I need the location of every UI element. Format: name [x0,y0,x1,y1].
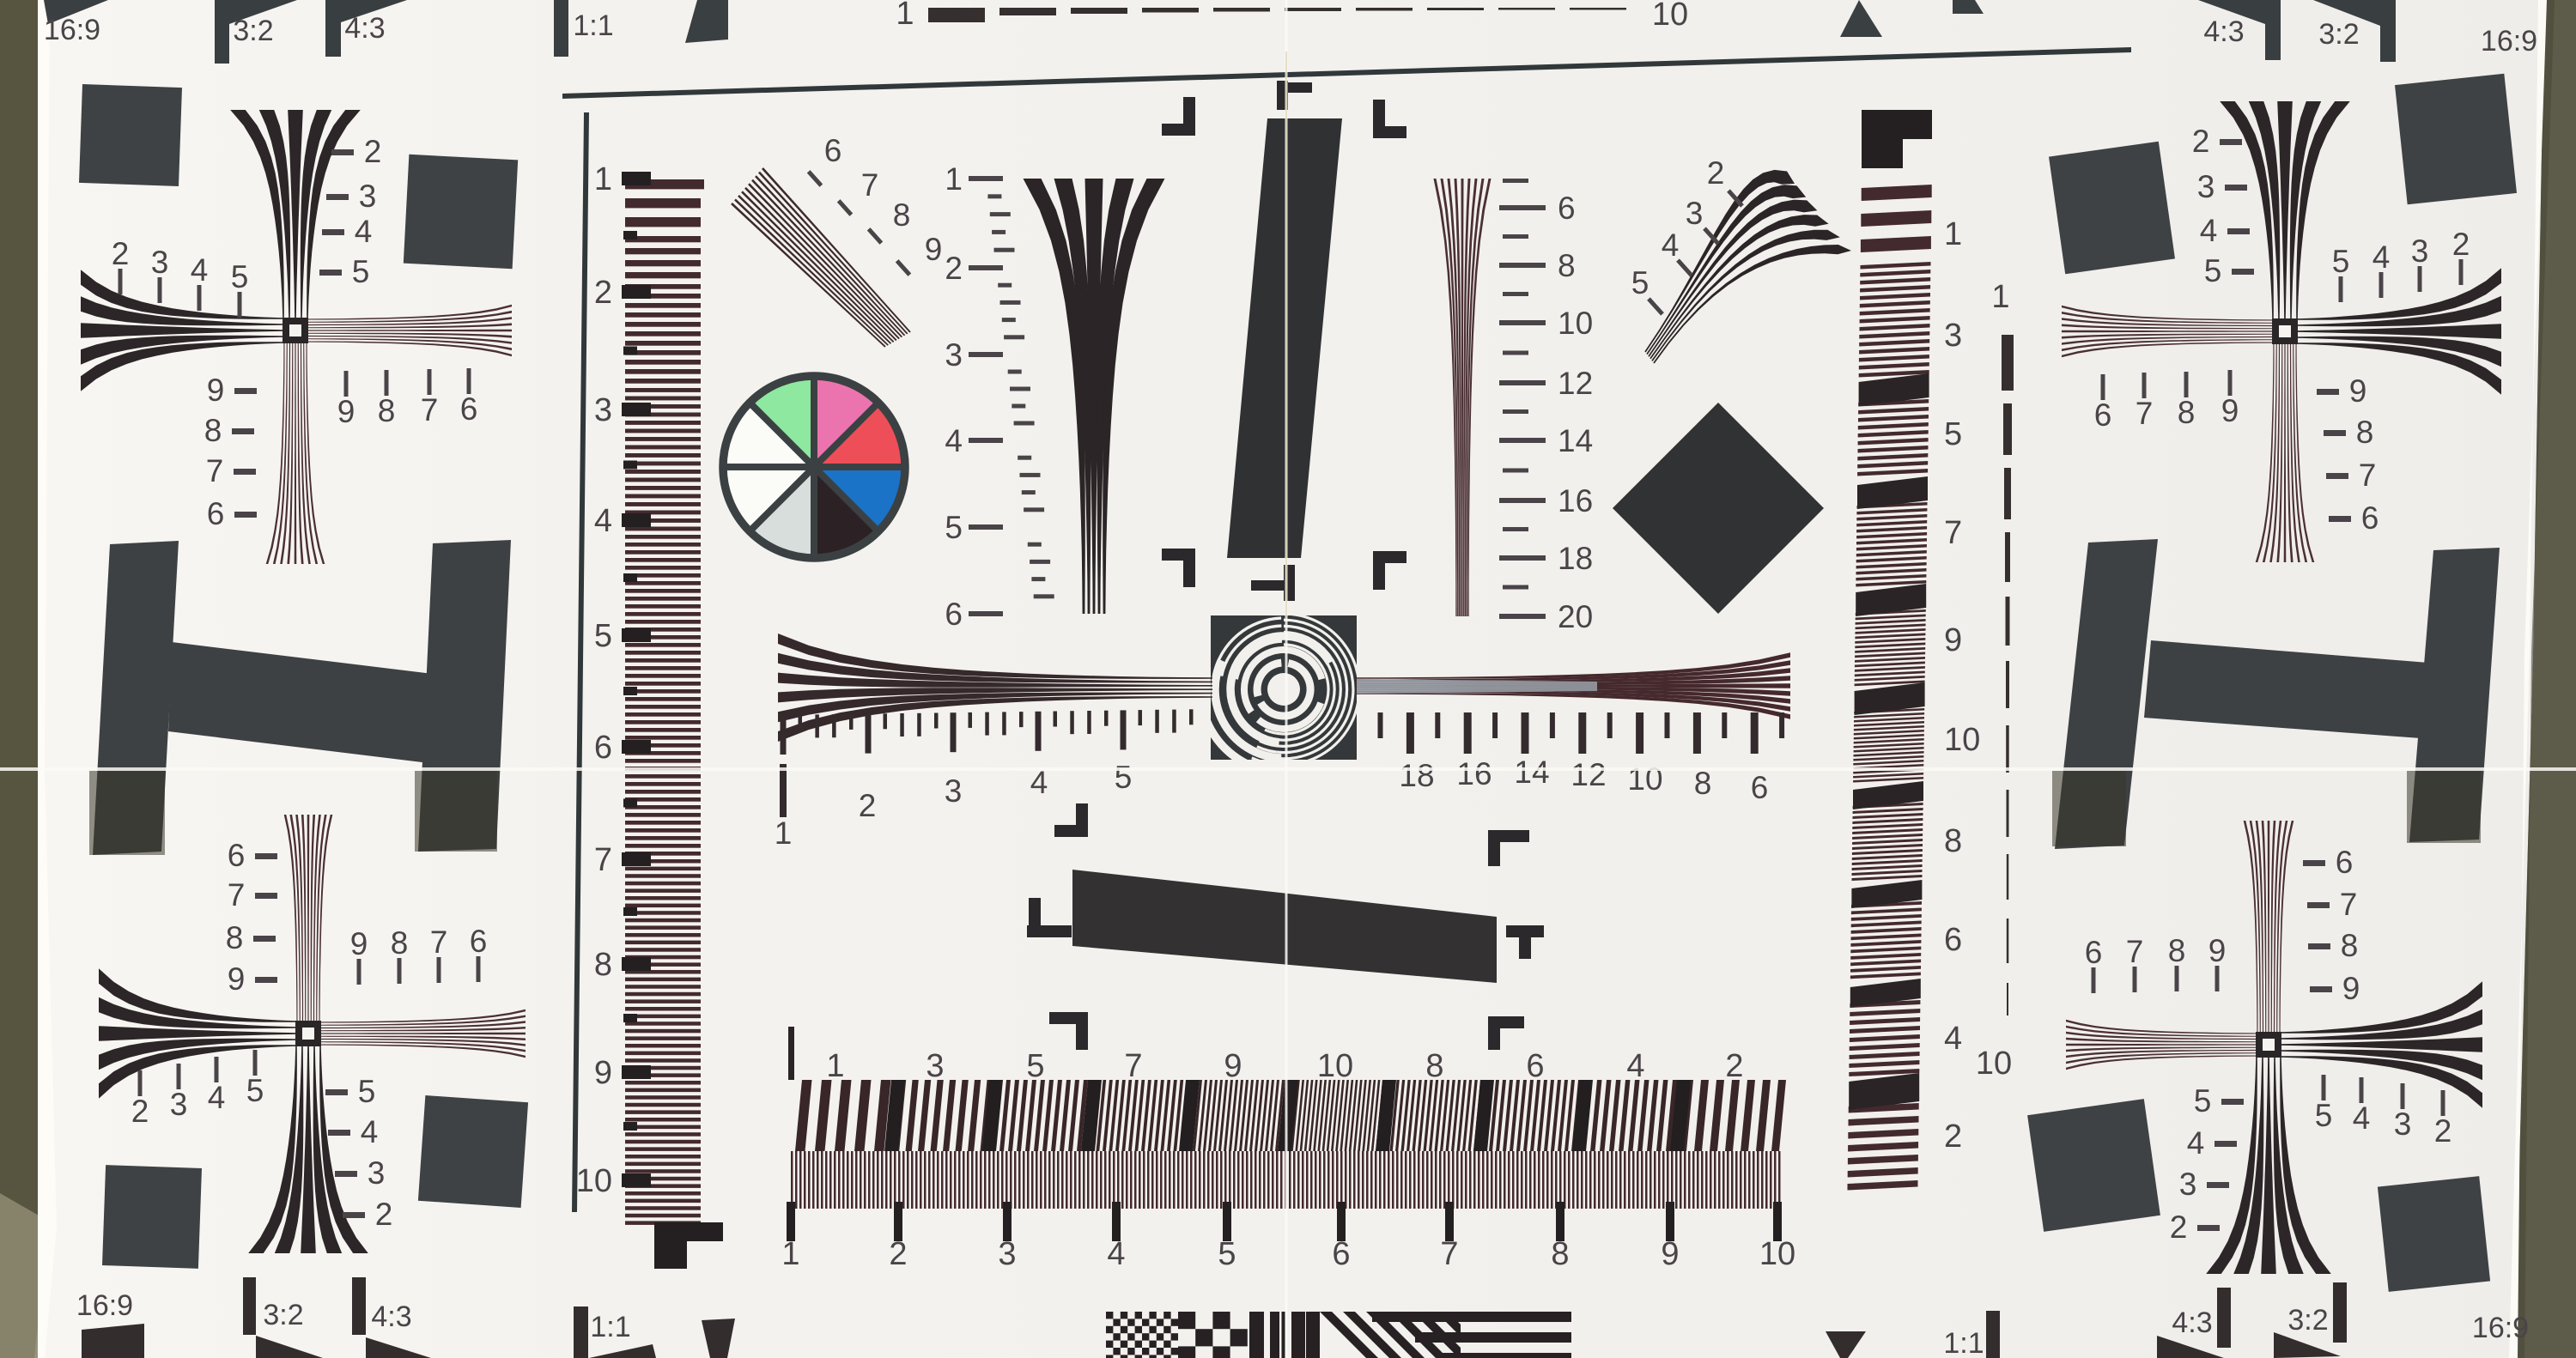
svg-text:6: 6 [470,924,488,959]
svg-text:2: 2 [1707,155,1725,191]
svg-text:4:3: 4:3 [344,12,385,45]
svg-text:7: 7 [1440,1236,1458,1272]
svg-text:2: 2 [594,275,612,311]
svg-text:5: 5 [1944,416,1962,452]
svg-text:4: 4 [2187,1125,2205,1161]
svg-text:1: 1 [1944,216,1962,252]
svg-text:6: 6 [2085,935,2103,970]
svg-text:1: 1 [945,161,963,197]
svg-text:16:9: 16:9 [2472,1312,2529,1344]
svg-text:1:1: 1:1 [1943,1327,1984,1358]
svg-text:7: 7 [2340,887,2358,922]
svg-text:8: 8 [893,197,911,233]
svg-text:7: 7 [861,167,879,203]
svg-text:6: 6 [1751,770,1769,805]
svg-text:16: 16 [1558,483,1593,518]
svg-text:3: 3 [2394,1106,2412,1142]
svg-text:6: 6 [2361,500,2379,536]
svg-text:4:3: 4:3 [371,1300,411,1333]
svg-text:8: 8 [2168,933,2186,968]
svg-text:2: 2 [2170,1209,2188,1245]
svg-text:7: 7 [1944,515,1962,551]
svg-text:1: 1 [775,815,793,851]
svg-text:16:9: 16:9 [44,14,100,46]
svg-text:16: 16 [1456,756,1492,791]
svg-text:5: 5 [2194,1083,2212,1119]
svg-text:9: 9 [337,394,355,429]
svg-text:8: 8 [1944,823,1962,859]
svg-text:8: 8 [2356,415,2374,450]
svg-text:6: 6 [594,730,612,766]
svg-text:1: 1 [826,1048,844,1084]
svg-text:6: 6 [228,838,246,873]
svg-text:1: 1 [594,161,612,197]
svg-text:1: 1 [896,0,914,32]
svg-text:4: 4 [1626,1048,1644,1084]
svg-text:16:9: 16:9 [2481,25,2537,58]
svg-text:20: 20 [1558,599,1593,634]
svg-text:9: 9 [2221,393,2239,428]
svg-text:5: 5 [1631,265,1649,300]
svg-text:12: 12 [1571,757,1606,792]
svg-text:10: 10 [1652,0,1688,33]
svg-text:5: 5 [1218,1236,1236,1272]
svg-text:3: 3 [1686,196,1704,231]
svg-text:6: 6 [1526,1048,1544,1084]
svg-text:4: 4 [1107,1236,1125,1272]
svg-text:5: 5 [352,254,370,289]
svg-text:2: 2 [1725,1048,1743,1084]
svg-text:8: 8 [226,920,244,955]
svg-text:6: 6 [1558,191,1576,226]
svg-text:7: 7 [2136,396,2154,431]
svg-text:3: 3 [998,1236,1016,1272]
svg-text:18: 18 [1558,541,1593,576]
svg-text:1:1: 1:1 [573,9,613,42]
svg-text:6: 6 [1332,1236,1350,1272]
svg-text:3:2: 3:2 [2287,1304,2328,1337]
svg-text:6: 6 [824,133,842,168]
svg-text:5: 5 [246,1073,264,1108]
svg-text:3: 3 [2197,169,2215,204]
svg-text:6: 6 [2336,845,2354,880]
svg-text:10: 10 [1944,722,1980,758]
svg-text:4: 4 [2353,1100,2371,1136]
svg-text:7: 7 [430,925,448,960]
svg-text:3: 3 [151,245,169,280]
svg-text:9: 9 [2342,971,2360,1006]
svg-text:2: 2 [375,1197,393,1232]
svg-text:9: 9 [1224,1048,1242,1084]
svg-text:10: 10 [1627,761,1662,797]
svg-text:8: 8 [594,947,612,983]
svg-text:10: 10 [1976,1046,2012,1082]
svg-text:2: 2 [131,1094,149,1129]
svg-text:4:3: 4:3 [2203,15,2244,48]
svg-text:8: 8 [391,925,409,961]
svg-text:8: 8 [378,393,396,428]
svg-text:4: 4 [594,503,612,539]
svg-text:9: 9 [594,1055,612,1091]
svg-text:2: 2 [859,788,877,823]
svg-text:3:2: 3:2 [2318,18,2359,51]
svg-text:9: 9 [350,926,368,961]
svg-text:10: 10 [1759,1236,1795,1272]
svg-text:9: 9 [925,232,943,267]
svg-text:2: 2 [2192,124,2210,159]
svg-text:3: 3 [945,337,963,373]
svg-text:4: 4 [208,1080,226,1115]
svg-text:9: 9 [2349,373,2367,409]
svg-text:6: 6 [1944,922,1962,958]
svg-text:8: 8 [1694,766,1712,801]
svg-text:3: 3 [945,773,963,809]
svg-text:4: 4 [2200,213,2218,248]
svg-text:9: 9 [1944,622,1962,658]
svg-text:6: 6 [460,391,478,427]
svg-text:7: 7 [594,842,612,878]
svg-text:3: 3 [1944,318,1962,354]
svg-text:4: 4 [355,214,373,249]
svg-text:3: 3 [359,179,377,214]
svg-text:14: 14 [1558,423,1593,458]
svg-text:2: 2 [2434,1113,2452,1149]
svg-text:5: 5 [231,259,249,294]
svg-text:16:9: 16:9 [76,1289,133,1322]
svg-text:10: 10 [1558,306,1593,341]
svg-text:7: 7 [206,453,224,488]
svg-text:6: 6 [945,597,963,632]
svg-text:4: 4 [945,423,963,458]
svg-text:2: 2 [1944,1119,1962,1155]
svg-text:5: 5 [358,1074,376,1109]
svg-text:8: 8 [1425,1048,1443,1084]
svg-text:2: 2 [2452,227,2470,262]
svg-text:7: 7 [421,392,439,427]
svg-text:3: 3 [368,1155,386,1191]
svg-text:2: 2 [112,236,130,271]
svg-text:3: 3 [170,1087,188,1122]
svg-text:8: 8 [2341,928,2359,963]
svg-text:9: 9 [207,373,225,408]
svg-text:2: 2 [945,251,963,286]
svg-text:5: 5 [945,510,963,545]
svg-text:5: 5 [1026,1048,1044,1084]
svg-text:3: 3 [594,392,612,428]
svg-text:9: 9 [228,961,246,997]
svg-text:6: 6 [207,496,225,531]
svg-text:3:2: 3:2 [263,1299,303,1331]
svg-text:4: 4 [2372,239,2391,275]
svg-text:8: 8 [1551,1236,1569,1272]
svg-text:8: 8 [204,413,222,448]
svg-text:2: 2 [364,134,382,169]
svg-text:5: 5 [2315,1098,2333,1133]
svg-text:9: 9 [2208,933,2227,968]
svg-text:7: 7 [228,877,246,912]
svg-text:8: 8 [2178,395,2196,430]
svg-text:12: 12 [1558,366,1593,401]
svg-text:2: 2 [889,1236,907,1272]
svg-text:7: 7 [2359,458,2377,493]
svg-text:14: 14 [1514,755,1549,790]
svg-text:3: 3 [926,1048,944,1084]
svg-text:3: 3 [2179,1167,2197,1202]
svg-text:7: 7 [1124,1048,1142,1084]
svg-text:3: 3 [2411,233,2429,269]
svg-text:4: 4 [191,252,209,288]
svg-text:1: 1 [1991,279,2009,315]
svg-text:1: 1 [781,1236,799,1272]
svg-text:8: 8 [1558,248,1576,283]
svg-text:10: 10 [576,1163,612,1199]
svg-text:7: 7 [2126,934,2144,969]
svg-text:4: 4 [1662,227,1680,263]
svg-text:1:1: 1:1 [590,1311,630,1343]
svg-text:6: 6 [2094,397,2112,433]
svg-text:18: 18 [1399,758,1434,793]
svg-text:4:3: 4:3 [2172,1306,2212,1339]
svg-text:3:2: 3:2 [233,15,273,47]
svg-text:5: 5 [2332,244,2350,279]
svg-text:5: 5 [2204,253,2222,288]
svg-text:9: 9 [1661,1236,1679,1272]
svg-text:4: 4 [1944,1021,1962,1057]
svg-text:4: 4 [361,1114,379,1149]
svg-text:5: 5 [1115,760,1133,795]
svg-text:5: 5 [594,618,612,654]
svg-text:10: 10 [1317,1048,1353,1084]
